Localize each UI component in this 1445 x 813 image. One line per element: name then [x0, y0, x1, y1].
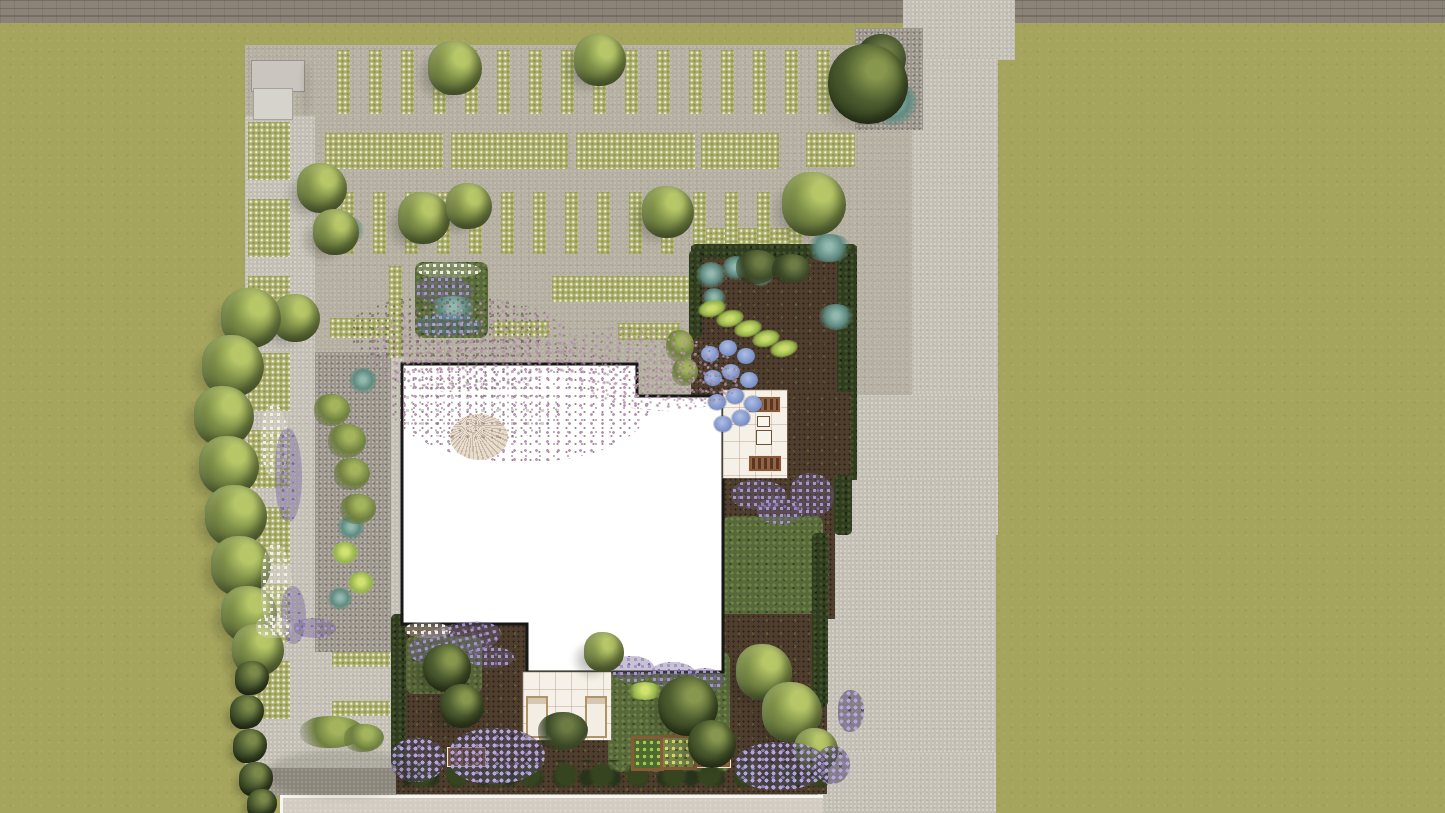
patio-east-table-2	[756, 430, 772, 445]
tree-olive	[584, 632, 624, 672]
east-drift-3	[790, 473, 834, 517]
paver-band	[332, 652, 390, 667]
tree-olive	[428, 41, 482, 95]
paver-strip-vertical	[657, 50, 670, 114]
hydrangea-cluster	[744, 396, 762, 412]
road-mid2	[827, 477, 998, 535]
north-sidewalk-strip	[0, 0, 1445, 23]
patio-south-lounge-right	[585, 696, 607, 738]
westpath-drift-purple-3	[294, 618, 336, 638]
south-drift-white	[405, 622, 451, 638]
paver-band	[806, 133, 855, 167]
sidewalk-tree-shadow	[268, 750, 420, 798]
site-plan-scene	[0, 0, 1445, 813]
paver-band	[451, 133, 568, 169]
westpath-drift-purple-1	[275, 428, 302, 522]
road-mid1	[850, 393, 998, 479]
patio-east-bench-bottom	[748, 455, 782, 472]
gravel-lime-1	[331, 542, 359, 564]
tree-olive	[297, 163, 347, 213]
paver-strip-vertical	[721, 50, 734, 114]
hedge-east-lower	[812, 533, 828, 707]
paver-strip-vertical	[401, 50, 414, 114]
paver-strip-vertical	[597, 192, 610, 254]
paver-band	[552, 276, 698, 302]
tree-olive	[782, 172, 846, 236]
paver-band	[325, 133, 443, 169]
paver-strip-vertical	[337, 50, 350, 114]
gravel-lime-2	[347, 572, 375, 594]
paver-block-west	[248, 122, 290, 180]
hedge-east-upper	[834, 475, 852, 535]
tree-dark	[688, 720, 736, 768]
paver-strip-vertical	[753, 50, 766, 114]
paver-strip-vertical	[785, 50, 798, 114]
paver-band	[332, 701, 390, 716]
hydrangea-cluster	[740, 372, 758, 388]
bed-east-mulch-upper	[787, 392, 851, 482]
bed-ne-hedge-left	[689, 250, 702, 338]
bed-east-groundcover	[723, 516, 823, 620]
tree-olive	[642, 186, 694, 238]
gravel-tuft-1	[349, 368, 377, 394]
south-drift-2	[468, 646, 514, 668]
tree-olive	[446, 183, 492, 229]
paver-strip-vertical	[501, 192, 514, 254]
tree-dark	[828, 44, 908, 124]
paver-strip-vertical	[497, 50, 510, 114]
blossom-canopy-4	[640, 358, 740, 404]
shed-lower	[253, 88, 293, 120]
paver-band	[576, 133, 695, 169]
shed-shadow	[303, 62, 310, 116]
paver-strip-vertical	[533, 192, 546, 254]
westpath-drift-white-3	[256, 616, 292, 638]
hydrangea-cluster	[714, 416, 732, 432]
cypress-tree	[247, 789, 277, 813]
hydrangea-cluster	[732, 410, 750, 426]
paver-strip-vertical	[565, 192, 578, 254]
paver-band	[701, 133, 779, 169]
paver-strip-vertical	[625, 50, 638, 114]
paver-block-west	[248, 199, 290, 257]
hydrangea-cluster	[737, 348, 755, 364]
paver-strip-vertical	[689, 50, 702, 114]
paver-strip-vertical	[369, 50, 382, 114]
ne-bed-tuft-6	[818, 304, 854, 330]
tree-olive	[574, 34, 626, 86]
blossom-twigs-lower	[400, 378, 560, 440]
tree-olive	[313, 209, 359, 255]
gravel-tuft-3	[327, 588, 353, 610]
patio-east-table-1	[757, 416, 770, 427]
tree-dark	[440, 684, 484, 728]
paver-strip-vertical	[373, 192, 386, 254]
paver-strip-vertical	[529, 50, 542, 114]
